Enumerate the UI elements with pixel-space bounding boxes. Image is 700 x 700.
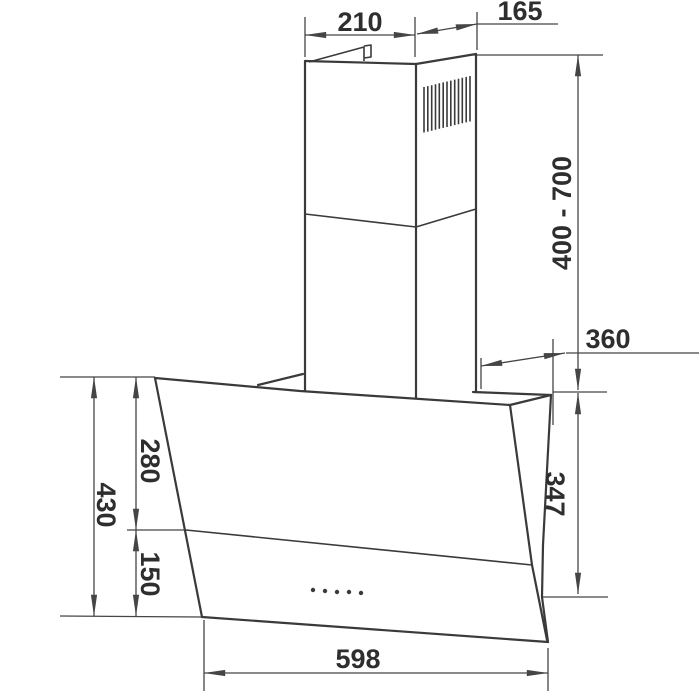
label-rear-height: 347 [540, 471, 570, 516]
chimney-top-front-edge [305, 61, 416, 64]
hood-bottom-edge [202, 617, 548, 642]
chimney-telescopic-joint [305, 209, 476, 227]
dimension-drawing-canvas: 210 165 400 - 700 360 430 280 150 347 59… [0, 0, 700, 700]
label-hood-top-depth: 360 [585, 324, 630, 354]
label-front-upper-height: 280 [135, 438, 165, 483]
dimension-lines [94, 24, 578, 673]
label-chimney-side-depth: 165 [497, 0, 542, 26]
hood-rear-right-edge [542, 395, 551, 642]
chimney-outline [305, 45, 476, 398]
hood-top-right-edge [510, 395, 551, 405]
control-dot [347, 590, 351, 594]
cooker-hood-dimension-diagram: 210 165 400 - 700 360 430 280 150 347 59… [0, 0, 700, 700]
hood-top-rear-sliver [258, 374, 303, 385]
hood-outline [155, 374, 551, 642]
hood-top-rear-edge [473, 392, 551, 395]
label-hood-width: 598 [335, 644, 380, 674]
control-dot [359, 591, 363, 595]
ext-hood-bottom-left [60, 616, 202, 617]
hood-panel-divider [186, 530, 532, 565]
label-chimney-width: 210 [337, 7, 382, 37]
dimline-chimney-side-depth [417, 24, 477, 34]
dimension-labels: 210 165 400 - 700 360 430 280 150 347 59… [91, 0, 631, 674]
chimney-mounting-flange [309, 45, 371, 62]
control-dot [335, 590, 339, 594]
hood-front-right-edge [510, 405, 547, 640]
control-dot [323, 589, 327, 593]
control-dot [311, 588, 315, 592]
label-chimney-height-range: 400 - 700 [547, 156, 577, 270]
label-front-total-height: 430 [91, 482, 121, 527]
hood-top-front-edge [155, 378, 510, 405]
vent-slots [424, 76, 470, 133]
label-front-lower-height: 150 [135, 551, 165, 596]
chimney-top-side-edge [416, 54, 476, 64]
control-dots [311, 588, 363, 595]
